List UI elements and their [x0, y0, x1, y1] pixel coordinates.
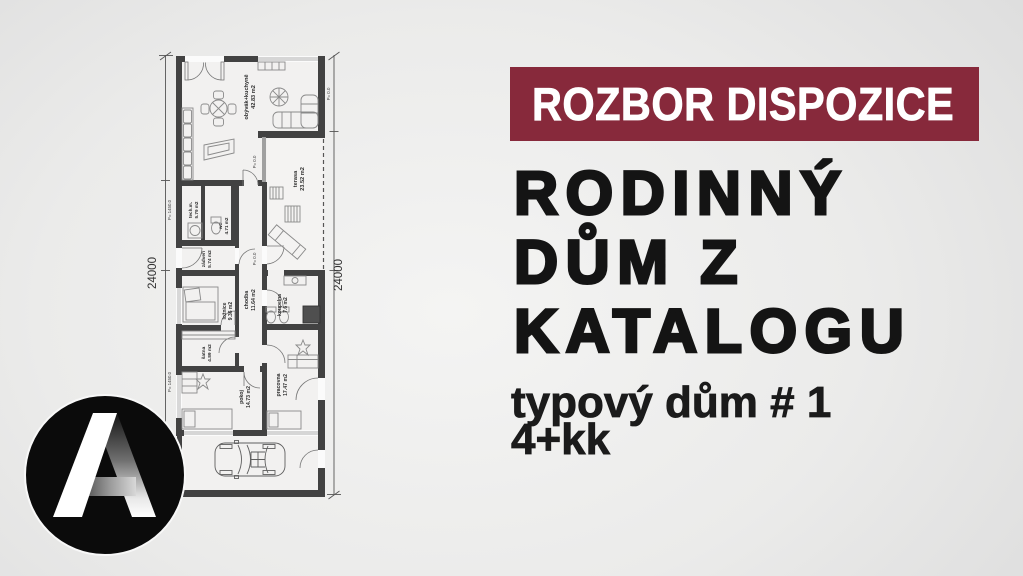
svg-text:14.73 m2: 14.73 m2 [246, 386, 252, 408]
svg-text:P= 0.0: P= 0.0 [252, 155, 257, 168]
svg-text:42.83 m2: 42.83 m2 [251, 85, 257, 109]
svg-text:4.89 m2: 4.89 m2 [207, 344, 213, 362]
svg-text:tech.m.: tech.m. [188, 202, 193, 218]
svg-text:5.74 m2: 5.74 m2 [207, 250, 213, 268]
svg-text:P= 1450.0: P= 1450.0 [167, 199, 172, 220]
svg-text:P= 1450.0: P= 1450.0 [167, 371, 172, 392]
svg-text:šatna: šatna [201, 346, 207, 359]
svg-text:17.47 m2: 17.47 m2 [283, 374, 289, 396]
svg-text:4.71 m2: 4.71 m2 [224, 217, 229, 234]
svg-text:chodba: chodba [244, 291, 250, 310]
svg-text:9.36 m2: 9.36 m2 [228, 302, 234, 321]
svg-text:zádveří: zádveří [201, 250, 207, 267]
svg-text:pokoj: pokoj [239, 390, 245, 404]
svg-text:11.64 m2: 11.64 m2 [251, 289, 257, 311]
svg-text:terasa: terasa [293, 170, 299, 187]
svg-text:7.6 m2: 7.6 m2 [283, 297, 289, 313]
svg-text:P= 0.0: P= 0.0 [326, 87, 331, 100]
svg-text:obývák+kuchyně: obývák+kuchyně [244, 74, 250, 119]
svg-text:24000: 24000 [147, 257, 159, 289]
svg-text:wc: wc [218, 222, 223, 230]
svg-text:P= 0.0: P= 0.0 [252, 252, 257, 265]
svg-text:24000: 24000 [333, 259, 345, 291]
svg-text:5.79 m2: 5.79 m2 [194, 201, 199, 218]
svg-text:pracovna: pracovna [276, 373, 282, 396]
svg-text:23.52 m2: 23.52 m2 [300, 167, 306, 191]
